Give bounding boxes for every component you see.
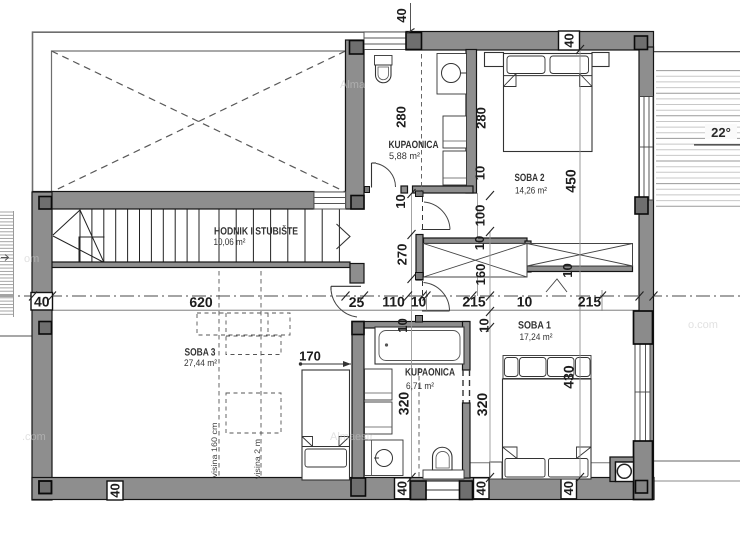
svg-text:40: 40 (108, 483, 123, 497)
svg-text:40: 40 (394, 8, 409, 22)
svg-text:Almaestr: Almaestr (330, 431, 374, 443)
svg-text:270: 270 (395, 244, 410, 266)
svg-text:215: 215 (462, 294, 486, 310)
svg-text:10: 10 (395, 318, 410, 332)
svg-text:17,24 m²: 17,24 m² (520, 332, 553, 343)
svg-text:620: 620 (189, 294, 213, 310)
svg-text:25: 25 (349, 294, 365, 310)
svg-text:visina 2 m: visina 2 m (253, 439, 262, 479)
svg-text:SOBA 1: SOBA 1 (518, 320, 551, 332)
svg-text:430: 430 (561, 365, 577, 389)
svg-text:22°: 22° (711, 125, 731, 140)
svg-text:10: 10 (472, 236, 487, 250)
svg-text:10: 10 (560, 263, 575, 277)
svg-text:40: 40 (561, 481, 576, 495)
svg-text:10: 10 (517, 294, 533, 310)
svg-text:100: 100 (473, 205, 488, 227)
svg-text:320: 320 (474, 393, 490, 417)
svg-text:40: 40 (474, 481, 489, 495)
svg-text:visina 160 cm: visina 160 cm (210, 422, 219, 477)
svg-text:KUPAONICA: KUPAONICA (405, 367, 455, 379)
svg-text:SOBA 2: SOBA 2 (515, 172, 545, 184)
svg-text:5,88 m²: 5,88 m² (389, 151, 420, 162)
svg-text:160: 160 (473, 264, 488, 286)
svg-text:170: 170 (299, 349, 321, 364)
svg-text:40: 40 (34, 293, 50, 309)
svg-text:Alma: Alma (340, 79, 366, 91)
svg-text:10: 10 (393, 194, 408, 208)
svg-text:40: 40 (562, 33, 577, 47)
svg-text:10: 10 (411, 294, 427, 310)
svg-text:40: 40 (395, 481, 410, 495)
svg-text:450: 450 (563, 169, 579, 193)
svg-text:10: 10 (473, 166, 488, 180)
svg-text:14,26 m²: 14,26 m² (515, 186, 547, 197)
svg-text:HODNIK I STUBIŠTE: HODNIK I STUBIŠTE (214, 225, 298, 238)
svg-text:6,71 m²: 6,71 m² (406, 381, 434, 392)
svg-text:280: 280 (474, 107, 489, 129)
svg-text:280: 280 (394, 106, 409, 128)
svg-text:10,06 m²: 10,06 m² (214, 237, 246, 248)
svg-text:om: om (24, 253, 39, 265)
svg-text:.com: .com (22, 431, 46, 443)
svg-text:SOBA 3: SOBA 3 (185, 347, 216, 359)
svg-text:110: 110 (382, 294, 405, 310)
svg-text:320: 320 (396, 392, 412, 416)
svg-text:o.com: o.com (688, 319, 718, 331)
svg-text:10: 10 (477, 318, 492, 332)
svg-text:KUPAONICA: KUPAONICA (389, 139, 439, 151)
svg-text:27,44 m²: 27,44 m² (184, 358, 217, 369)
svg-text:215: 215 (578, 294, 602, 310)
